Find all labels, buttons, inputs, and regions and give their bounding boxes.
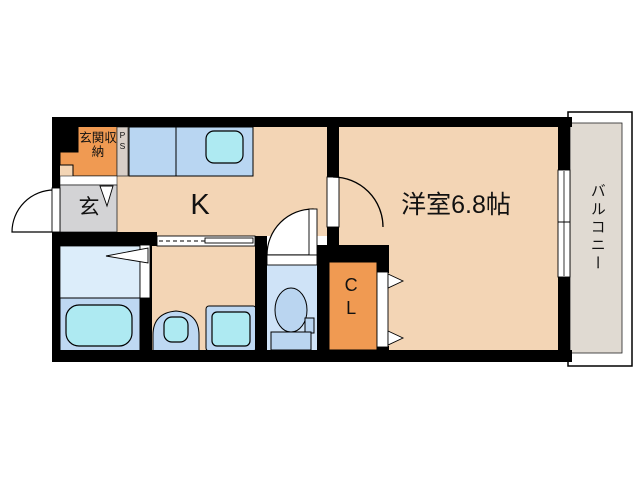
- balcony-label: バルコニー: [588, 183, 605, 273]
- toilet-door-leaf: [309, 209, 317, 255]
- toilet-paper-holder: [305, 318, 314, 333]
- wall-top: [52, 117, 572, 127]
- entrance-storage-label: 玄関収納: [79, 131, 117, 159]
- western-room-label: 洋室6.8帖: [356, 191, 556, 219]
- room-door-leaf: [327, 177, 339, 227]
- closet-label: CL: [341, 275, 361, 321]
- washbasin-bowl: [164, 317, 188, 342]
- sliding-door-panel: [205, 238, 253, 243]
- toilet-bowl: [275, 288, 307, 332]
- floorplan: 玄関収納 PS 玄 K 洋室6.8帖 CL バルコニー: [0, 0, 638, 480]
- wall-kitchen-room-upper: [327, 127, 339, 177]
- front-door-swing-icon: [12, 190, 54, 232]
- entrance-step: [60, 176, 117, 185]
- pipe-space-label: PS: [117, 130, 127, 152]
- wall-entrance-corner: [52, 117, 78, 152]
- kitchen-sink: [206, 131, 243, 163]
- entrance-label: 玄: [74, 196, 104, 220]
- wall-closet-right-top: [377, 262, 389, 273]
- floorplan-drawing: [0, 0, 638, 480]
- wall-toilet-closet: [317, 249, 329, 352]
- washing-machine-tub: [212, 312, 250, 346]
- wall-bottom: [52, 350, 572, 362]
- closet-door: [377, 272, 388, 347]
- toilet-tank: [271, 332, 311, 350]
- wall-washroom-toilet: [255, 236, 267, 352]
- kitchen-label: K: [182, 189, 218, 221]
- toilet-doorway: [267, 255, 317, 265]
- bathtub: [66, 305, 132, 346]
- front-doorway: [52, 188, 60, 232]
